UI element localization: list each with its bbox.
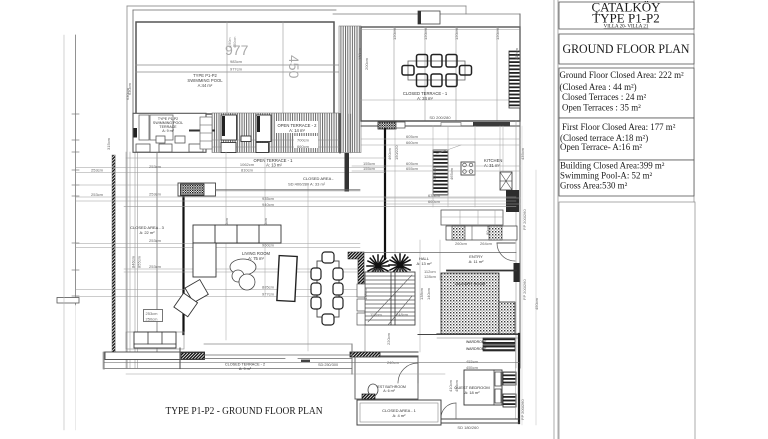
svg-text:253cm: 253cm bbox=[149, 238, 162, 243]
svg-text:Gross Area:530 m²: Gross Area:530 m² bbox=[560, 181, 628, 191]
svg-text:935cm: 935cm bbox=[262, 196, 275, 201]
svg-text:A: 11 m²: A: 11 m² bbox=[469, 259, 484, 264]
svg-text:A: 24 m²: A: 24 m² bbox=[417, 96, 433, 101]
svg-text:465cm: 465cm bbox=[449, 167, 454, 180]
svg-text:80cm: 80cm bbox=[485, 225, 490, 235]
svg-text:128cm: 128cm bbox=[424, 274, 437, 279]
svg-text:A: 4 m²: A: 4 m² bbox=[393, 413, 407, 418]
svg-text:412cm: 412cm bbox=[514, 47, 519, 60]
svg-text:112cm: 112cm bbox=[370, 267, 382, 272]
svg-text:A: 31 m²: A: 31 m² bbox=[484, 163, 500, 168]
svg-text:453cm: 453cm bbox=[466, 359, 479, 364]
svg-text:4,90m: 4,90m bbox=[228, 37, 232, 48]
svg-text:700cm: 700cm bbox=[297, 138, 310, 143]
svg-text:846cm: 846cm bbox=[131, 255, 136, 268]
svg-text:120cm: 120cm bbox=[423, 27, 428, 40]
svg-text:SD 180/260: SD 180/260 bbox=[457, 425, 479, 430]
svg-text:410cm: 410cm bbox=[448, 379, 453, 392]
svg-text:150/220: 150/220 bbox=[394, 145, 399, 160]
svg-text:WARDROBE: WARDROBE bbox=[466, 347, 487, 351]
svg-text:WARDROBE: WARDROBE bbox=[466, 340, 487, 344]
svg-text:138cm: 138cm bbox=[363, 287, 368, 300]
svg-text:Ground Floor Closed Area: 222: Ground Floor Closed Area: 222 m² bbox=[560, 70, 685, 80]
svg-text:260cm: 260cm bbox=[455, 241, 468, 246]
svg-text:940cm: 940cm bbox=[262, 202, 275, 207]
svg-text:LAUNDRY ROOM: LAUNDRY ROOM bbox=[455, 282, 486, 286]
svg-text:655cm: 655cm bbox=[406, 166, 419, 171]
svg-text:630cm: 630cm bbox=[125, 87, 130, 100]
svg-text:635cm: 635cm bbox=[428, 193, 441, 198]
svg-text:977cm: 977cm bbox=[230, 67, 243, 72]
svg-text:435cm: 435cm bbox=[520, 147, 525, 160]
svg-text:253cm: 253cm bbox=[91, 192, 104, 197]
svg-text:130cm: 130cm bbox=[357, 47, 362, 60]
svg-text:Swimming Pool-A: 52 m²: Swimming Pool-A: 52 m² bbox=[560, 171, 652, 181]
svg-text:250cm: 250cm bbox=[146, 317, 159, 322]
svg-text:810cm: 810cm bbox=[241, 168, 254, 173]
svg-text:315cm: 315cm bbox=[106, 137, 111, 150]
svg-text:First Floor Closed Area: 177 m: First Floor Closed Area: 177 m² bbox=[562, 122, 676, 132]
svg-text:605cm: 605cm bbox=[406, 134, 419, 139]
svg-text:FP 200/260: FP 200/260 bbox=[520, 399, 525, 420]
svg-text:660cm: 660cm bbox=[406, 140, 419, 145]
svg-text:140cm: 140cm bbox=[426, 287, 431, 300]
svg-text:155cm: 155cm bbox=[363, 166, 376, 171]
svg-text:138cm: 138cm bbox=[419, 287, 424, 300]
svg-text:A:44 m²: A:44 m² bbox=[198, 83, 213, 88]
svg-text:SD:400/280 A: 33 m²: SD:400/280 A: 33 m² bbox=[288, 182, 326, 187]
svg-text:253cm: 253cm bbox=[149, 264, 162, 269]
svg-text:120cm: 120cm bbox=[495, 27, 500, 40]
svg-text:TYPE P1-P2 - GROUND FLOOR PLAN: TYPE P1-P2 - GROUND FLOOR PLAN bbox=[166, 406, 323, 417]
svg-text:855cm: 855cm bbox=[137, 255, 142, 268]
svg-text:SD 200/280: SD 200/280 bbox=[429, 115, 451, 120]
svg-text:885cm: 885cm bbox=[262, 285, 275, 290]
svg-text:VILLA 20- VILLA 21: VILLA 20- VILLA 21 bbox=[604, 25, 649, 30]
svg-text:A: 22 m²: A: 22 m² bbox=[139, 230, 155, 235]
svg-text:660cm: 660cm bbox=[297, 144, 310, 149]
svg-text:264cm: 264cm bbox=[480, 241, 493, 246]
svg-text:977cm: 977cm bbox=[262, 292, 275, 297]
svg-text:253cm: 253cm bbox=[91, 168, 104, 173]
svg-text:FP 200/260: FP 200/260 bbox=[522, 209, 527, 230]
svg-text:A: 13 m²: A: 13 m² bbox=[416, 261, 432, 266]
svg-text:TYPE P1-P2: TYPE P1-P2 bbox=[592, 11, 660, 26]
svg-text:120cm: 120cm bbox=[454, 27, 459, 40]
svg-text:660cm: 660cm bbox=[428, 199, 441, 204]
svg-text:450cm: 450cm bbox=[454, 379, 459, 392]
svg-text:455cm: 455cm bbox=[466, 365, 479, 370]
svg-text:460cm: 460cm bbox=[387, 147, 392, 160]
svg-text:1062cm: 1062cm bbox=[240, 162, 255, 167]
svg-text:(Closed Area : 44 m²): (Closed Area : 44 m²) bbox=[560, 82, 637, 92]
svg-text:A: 9 m²: A: 9 m² bbox=[239, 367, 252, 371]
svg-text:112cm: 112cm bbox=[370, 312, 382, 317]
svg-text:253cm: 253cm bbox=[149, 192, 162, 197]
svg-text:A: 13 m²: A: 13 m² bbox=[266, 163, 282, 168]
svg-text:200cm: 200cm bbox=[364, 57, 369, 70]
svg-text:Building Closed Area:399 m²: Building Closed Area:399 m² bbox=[560, 161, 665, 171]
svg-text:248cm: 248cm bbox=[396, 312, 409, 317]
svg-text:450cm: 450cm bbox=[233, 37, 237, 48]
svg-text:CLOSED TERRACE - 2: CLOSED TERRACE - 2 bbox=[225, 363, 265, 367]
svg-text:450: 450 bbox=[286, 55, 302, 79]
svg-text:CLOSED AREA -: CLOSED AREA - bbox=[303, 176, 334, 181]
svg-text:Closed Terraces : 24 m²: Closed Terraces : 24 m² bbox=[562, 92, 647, 102]
svg-text:253cm: 253cm bbox=[149, 164, 162, 169]
svg-text:220cm: 220cm bbox=[396, 267, 409, 272]
svg-text:Open Terraces : 35 m²: Open Terraces : 35 m² bbox=[562, 103, 641, 113]
svg-text:450cm: 450cm bbox=[534, 297, 539, 310]
svg-text:A: 6 m²: A: 6 m² bbox=[383, 389, 395, 393]
svg-text:A: 18 m²: A: 18 m² bbox=[464, 390, 480, 395]
svg-text:Open Terrace- A:16 m²: Open Terrace- A:16 m² bbox=[560, 142, 642, 152]
svg-text:SD:250/300: SD:250/300 bbox=[318, 363, 338, 367]
svg-text:435cm: 435cm bbox=[432, 167, 437, 180]
svg-text:220cm: 220cm bbox=[386, 332, 391, 345]
svg-text:983cm: 983cm bbox=[230, 59, 243, 64]
svg-text:A: 14 m²: A: 14 m² bbox=[289, 128, 305, 133]
svg-text:A: 9 m²: A: 9 m² bbox=[162, 129, 174, 133]
svg-text:120cm: 120cm bbox=[392, 27, 397, 40]
svg-text:GROUND FLOOR PLAN: GROUND FLOOR PLAN bbox=[563, 41, 691, 56]
svg-text:253cm: 253cm bbox=[146, 311, 159, 316]
svg-text:FP 200/260: FP 200/260 bbox=[522, 279, 527, 300]
